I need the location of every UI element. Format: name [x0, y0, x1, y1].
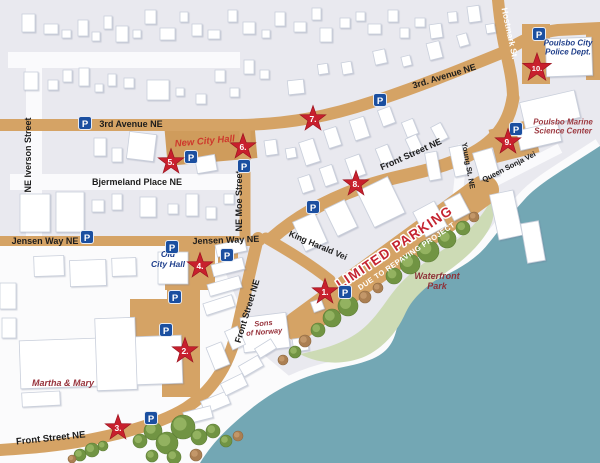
map-canvas: 3rd Avenue NE3rd. Avenue NENE Iverson St…: [0, 0, 600, 463]
svg-text:P: P: [188, 153, 195, 164]
building: [195, 154, 217, 173]
building: [320, 28, 332, 42]
svg-text:10.: 10.: [532, 64, 542, 73]
tree-icon: [311, 323, 325, 337]
place-label-marine-science-center: Poulsbo MarineScience Center: [533, 117, 593, 135]
parking-icon: P: [238, 160, 251, 173]
parking-icon: P: [533, 28, 546, 41]
building: [70, 259, 107, 286]
building: [62, 30, 71, 38]
parking-icon: P: [79, 117, 92, 130]
building: [78, 20, 88, 36]
building: [388, 10, 398, 22]
svg-text:P: P: [377, 96, 384, 107]
building: [63, 70, 72, 82]
building: [176, 88, 184, 96]
place-label-poulsbo-city-police: Poulsbo CityPolice Dept.: [544, 38, 593, 56]
svg-text:Science Center: Science Center: [534, 127, 593, 136]
parking-icon: P: [160, 324, 173, 337]
building: [44, 24, 58, 34]
place-label-martha-and-mary: Martha & Mary: [32, 378, 95, 388]
tree-icon: [146, 450, 158, 462]
parking-icon: P: [185, 151, 198, 164]
tree-icon: [456, 221, 470, 235]
svg-text:P: P: [148, 414, 155, 425]
parking-icon: P: [339, 286, 352, 299]
shrub-icon: [469, 212, 479, 222]
building: [2, 318, 16, 338]
shrub-icon: [359, 291, 371, 303]
building: [186, 194, 198, 216]
building: [341, 61, 353, 75]
svg-text:P: P: [536, 30, 543, 41]
building: [215, 70, 225, 82]
building: [22, 391, 61, 407]
building: [243, 22, 255, 34]
svg-text:P: P: [310, 203, 317, 214]
tree-icon: [206, 424, 220, 438]
building: [24, 72, 38, 90]
building: [415, 18, 425, 27]
building: [228, 10, 237, 22]
building: [22, 14, 35, 32]
svg-text:P: P: [513, 125, 520, 136]
street-label-ne-iverson-street: NE Iverson Street: [23, 117, 33, 192]
building: [368, 24, 381, 34]
shrub-icon: [190, 449, 202, 461]
parking-icon: P: [374, 94, 387, 107]
tree-icon: [191, 429, 207, 445]
svg-text:P: P: [82, 119, 89, 130]
building: [112, 194, 122, 210]
building: [92, 32, 100, 41]
svg-text:1.: 1.: [321, 287, 328, 297]
building: [312, 8, 321, 20]
building: [196, 94, 206, 104]
building: [485, 23, 495, 33]
building: [160, 28, 175, 40]
street-label-ne-moe-street: NE Moe Street: [234, 170, 244, 231]
svg-text:P: P: [169, 243, 176, 254]
building: [206, 207, 216, 219]
svg-text:5.: 5.: [167, 157, 174, 167]
building: [95, 317, 137, 390]
building: [79, 68, 89, 86]
building: [448, 12, 458, 23]
svg-text:P: P: [224, 251, 231, 262]
building: [147, 80, 169, 100]
shrub-icon: [233, 431, 243, 441]
tree-icon: [133, 434, 147, 448]
svg-text:7.: 7.: [309, 114, 316, 124]
shrub-icon: [278, 355, 288, 365]
tree-icon: [289, 346, 301, 358]
building: [20, 194, 50, 232]
building: [287, 79, 304, 95]
building: [95, 84, 103, 92]
building: [56, 192, 84, 232]
building: [401, 55, 412, 67]
building: [356, 12, 365, 21]
building: [264, 139, 278, 156]
building: [373, 49, 388, 65]
building: [400, 28, 409, 38]
building: [112, 148, 122, 162]
svg-text:Police Dept.: Police Dept.: [545, 48, 591, 57]
parking-icon: P: [166, 241, 179, 254]
svg-text:P: P: [172, 293, 179, 304]
building: [244, 60, 254, 74]
building: [34, 255, 65, 276]
building: [275, 12, 285, 26]
building: [133, 30, 141, 38]
svg-text:9.: 9.: [504, 137, 511, 147]
parking-icon: P: [169, 291, 182, 304]
building: [145, 10, 156, 24]
tree-icon: [167, 450, 181, 463]
street-label-bjermeland-place-ne: Bjermeland Place NE: [92, 177, 182, 187]
svg-text:3.: 3.: [114, 423, 121, 433]
shrub-icon: [373, 283, 383, 293]
svg-text:Park: Park: [427, 281, 448, 291]
svg-text:4.: 4.: [196, 261, 203, 271]
building: [0, 283, 16, 309]
tree-icon: [85, 443, 99, 457]
building: [317, 63, 328, 74]
parking-icon: P: [145, 412, 158, 425]
building: [262, 30, 270, 38]
svg-text:8.: 8.: [352, 179, 359, 189]
building: [340, 18, 350, 28]
svg-text:Waterfront: Waterfront: [414, 271, 460, 281]
building: [92, 200, 104, 212]
svg-text:Poulsbo Marine: Poulsbo Marine: [533, 117, 593, 126]
parking-icon: P: [510, 123, 523, 136]
building: [260, 70, 269, 79]
building: [94, 138, 106, 156]
building: [48, 80, 58, 90]
building: [192, 24, 202, 36]
tree-icon: [323, 309, 341, 327]
building: [467, 5, 481, 23]
svg-text:P: P: [163, 326, 170, 337]
building: [124, 78, 134, 88]
building: [429, 23, 443, 39]
building: [108, 74, 116, 86]
svg-text:2.: 2.: [181, 346, 188, 356]
building: [112, 258, 137, 277]
shrub-icon: [68, 455, 76, 463]
tree-icon: [98, 441, 108, 451]
building: [180, 12, 188, 22]
building: [168, 204, 178, 214]
street-label-jensen-way-ne: Jensen Way NE: [12, 236, 79, 246]
svg-text:P: P: [342, 288, 349, 299]
svg-text:6.: 6.: [239, 142, 246, 152]
building: [208, 30, 220, 39]
svg-text:City Hall: City Hall: [151, 259, 186, 269]
parking-icon: P: [221, 249, 234, 262]
building: [104, 16, 112, 29]
parking-icon: P: [81, 231, 94, 244]
building: [230, 88, 239, 97]
svg-text:Poulsbo City: Poulsbo City: [544, 38, 593, 47]
shrub-icon: [299, 335, 311, 347]
building: [126, 131, 156, 161]
poulsbo-parking-map: 3rd Avenue NE3rd. Avenue NENE Iverson St…: [0, 0, 600, 463]
building: [294, 22, 306, 32]
svg-text:P: P: [84, 233, 91, 244]
street-label-3rd-avenue-ne: 3rd Avenue NE: [99, 119, 162, 129]
svg-text:Martha & Mary: Martha & Mary: [32, 378, 95, 388]
parking-icon: P: [307, 201, 320, 214]
building: [140, 197, 156, 217]
svg-text:P: P: [241, 162, 248, 173]
building: [285, 147, 297, 159]
building: [116, 26, 128, 42]
building: [224, 194, 234, 204]
tree-icon: [220, 435, 232, 447]
